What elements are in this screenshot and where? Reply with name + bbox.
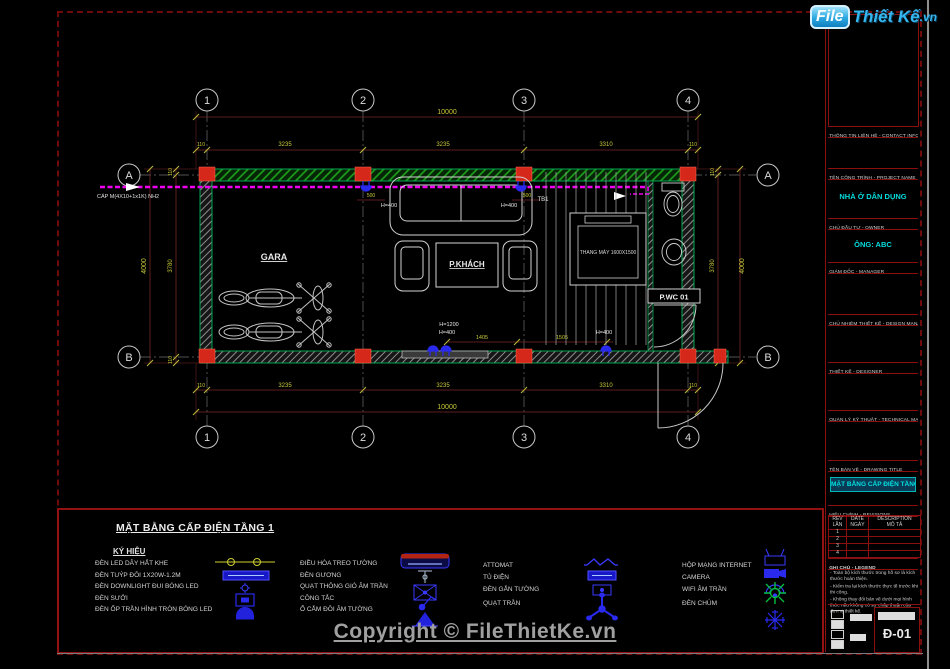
ac-unit-symbol — [401, 554, 449, 568]
tb-technical-manager-header: QUẢN LÝ KỸ THUẬT - TECHNICAL MANAGER — [828, 410, 918, 422]
svg-text:B: B — [764, 352, 771, 364]
svg-text:4: 4 — [685, 432, 691, 444]
svg-text:4: 4 — [685, 95, 691, 107]
svg-text:10000: 10000 — [437, 109, 457, 116]
room-label-wc: P.WC 01 — [659, 293, 688, 302]
panel-label: TB1 — [537, 197, 549, 203]
motorbike — [219, 283, 331, 313]
logo-file: File — [810, 5, 850, 29]
snowflake-light-symbol — [765, 610, 785, 630]
svg-text:H=400: H=400 — [501, 203, 517, 209]
logo-thietke: Thiết Kế — [853, 7, 920, 27]
tb-owner-header: CHỦ ĐẦU TƯ - OWNER — [828, 218, 918, 230]
svg-text:3: 3 — [521, 95, 527, 107]
camera-symbol — [764, 569, 786, 578]
svg-text:3235: 3235 — [436, 142, 450, 148]
staircase: THANG MÁY 1600X1500 — [546, 172, 646, 345]
tb-drawing-title-header: TÊN BẢN VẼ - DRAWING TITLE — [828, 460, 918, 472]
internet-router-symbol — [765, 549, 785, 565]
heater-symbol — [236, 594, 254, 606]
led-strip-symbol — [215, 559, 275, 566]
switch-symbol — [419, 597, 435, 610]
tb-project-header: TÊN CÔNG TRÌNH - PROJECT NAME — [828, 168, 918, 180]
window-edge-bottom — [57, 653, 923, 654]
tb-manager-header: GIÁM ĐỐC - MANAGER — [828, 262, 918, 274]
svg-text:3780: 3780 — [710, 259, 716, 273]
logo: File Thiết Kế .vn — [810, 5, 937, 29]
ceiling-fan-symbol — [587, 593, 618, 620]
svg-text:500: 500 — [523, 193, 532, 199]
dimension-ticks — [147, 114, 743, 415]
svg-text:3: 3 — [521, 432, 527, 444]
logo-vn: .vn — [920, 10, 937, 24]
electric-panel-symbol — [588, 571, 616, 580]
tb-drawing-title: MẶT BẰNG CẤP ĐIỆN TẦNG 1 — [830, 477, 916, 492]
copyright-watermark: Copyright © FileThietKe.vn — [240, 620, 710, 644]
tb-project-name: NHÀ Ở DÂN DỤNG — [828, 192, 918, 201]
svg-text:10000: 10000 — [437, 404, 457, 411]
svg-text:3310: 3310 — [599, 142, 613, 148]
svg-text:3310: 3310 — [599, 383, 613, 389]
svg-text:2: 2 — [360, 95, 366, 107]
svg-text:500: 500 — [367, 193, 376, 199]
window-edge-right — [927, 0, 929, 669]
svg-text:110: 110 — [168, 356, 174, 364]
svg-text:H=400: H=400 — [439, 330, 455, 336]
svg-text:110: 110 — [197, 383, 205, 389]
title-block-logo-cell — [828, 14, 919, 127]
svg-text:110: 110 — [689, 142, 697, 148]
svg-text:H=400: H=400 — [381, 203, 397, 209]
toilet-tank — [662, 183, 684, 191]
tb-designer-header: THIẾT KẾ - DESIGNER — [828, 362, 918, 374]
chandelier-symbol — [764, 582, 786, 604]
entrance-door-swing — [658, 363, 723, 428]
round-ceiling-light-symbol — [236, 607, 254, 620]
svg-text:4000: 4000 — [739, 258, 746, 274]
room-label-gara: GARA — [261, 252, 288, 262]
tube-light-symbol — [223, 571, 269, 580]
cad-sheet: 10000 110 3235 3235 3310 110 110 3235 32… — [0, 0, 950, 669]
breaker-symbol — [584, 559, 618, 565]
room-label-living: P.KHÁCH — [449, 260, 485, 269]
drawing-number-cell: Đ-01 — [874, 607, 920, 653]
svg-text:H=400: H=400 — [596, 330, 612, 336]
svg-text:3780: 3780 — [168, 259, 174, 273]
downlight-symbol — [240, 583, 250, 593]
motorbike — [219, 317, 331, 347]
tb-owner-name: ÔNG: ABC — [828, 240, 918, 249]
garage: GARA — [219, 252, 331, 347]
svg-text:B: B — [125, 352, 132, 364]
drawing-number: Đ-01 — [875, 626, 919, 641]
revision-table: REVLẦN DATENGÀY DESCRIPTIONMÔ TẢ 1 2 3 4 — [828, 515, 921, 558]
tb-contact-header: THÔNG TIN LIÊN HỆ - CONTACT INFO — [828, 126, 918, 138]
mirror-light-symbol — [418, 571, 432, 583]
svg-text:110: 110 — [168, 168, 174, 176]
svg-text:1405: 1405 — [476, 335, 488, 341]
svg-text:4000: 4000 — [141, 258, 148, 274]
svg-text:110: 110 — [710, 168, 716, 176]
grid-axes — [140, 111, 756, 426]
dimension-text: 10000 110 3235 3235 3310 110 110 3235 32… — [141, 109, 746, 411]
tb-notes-header: GHI CHÚ - LEGEND — [828, 558, 918, 570]
title-block-footer: Đ-01 — [828, 604, 920, 653]
svg-text:H=1200: H=1200 — [439, 322, 458, 328]
svg-text:110: 110 — [689, 383, 697, 389]
svg-text:3235: 3235 — [436, 383, 450, 389]
svg-text:3235: 3235 — [278, 142, 292, 148]
dimension-lines — [144, 111, 746, 420]
tb-design-manager-header: CHỦ NHIỆM THIẾT KẾ - DESIGN MANAGER — [828, 314, 918, 326]
svg-text:1: 1 — [204, 95, 210, 107]
svg-text:110: 110 — [197, 142, 205, 148]
cable-label: CÁP M(4X10+1x1K) NH2 — [97, 193, 159, 200]
svg-text:A: A — [125, 170, 133, 182]
svg-text:1: 1 — [204, 432, 210, 444]
svg-text:A: A — [764, 170, 772, 182]
svg-text:3235: 3235 — [278, 383, 292, 389]
svg-text:2: 2 — [360, 432, 366, 444]
tv-cabinet — [402, 351, 488, 358]
elevator-label: THANG MÁY 1600X1500 — [580, 249, 637, 256]
